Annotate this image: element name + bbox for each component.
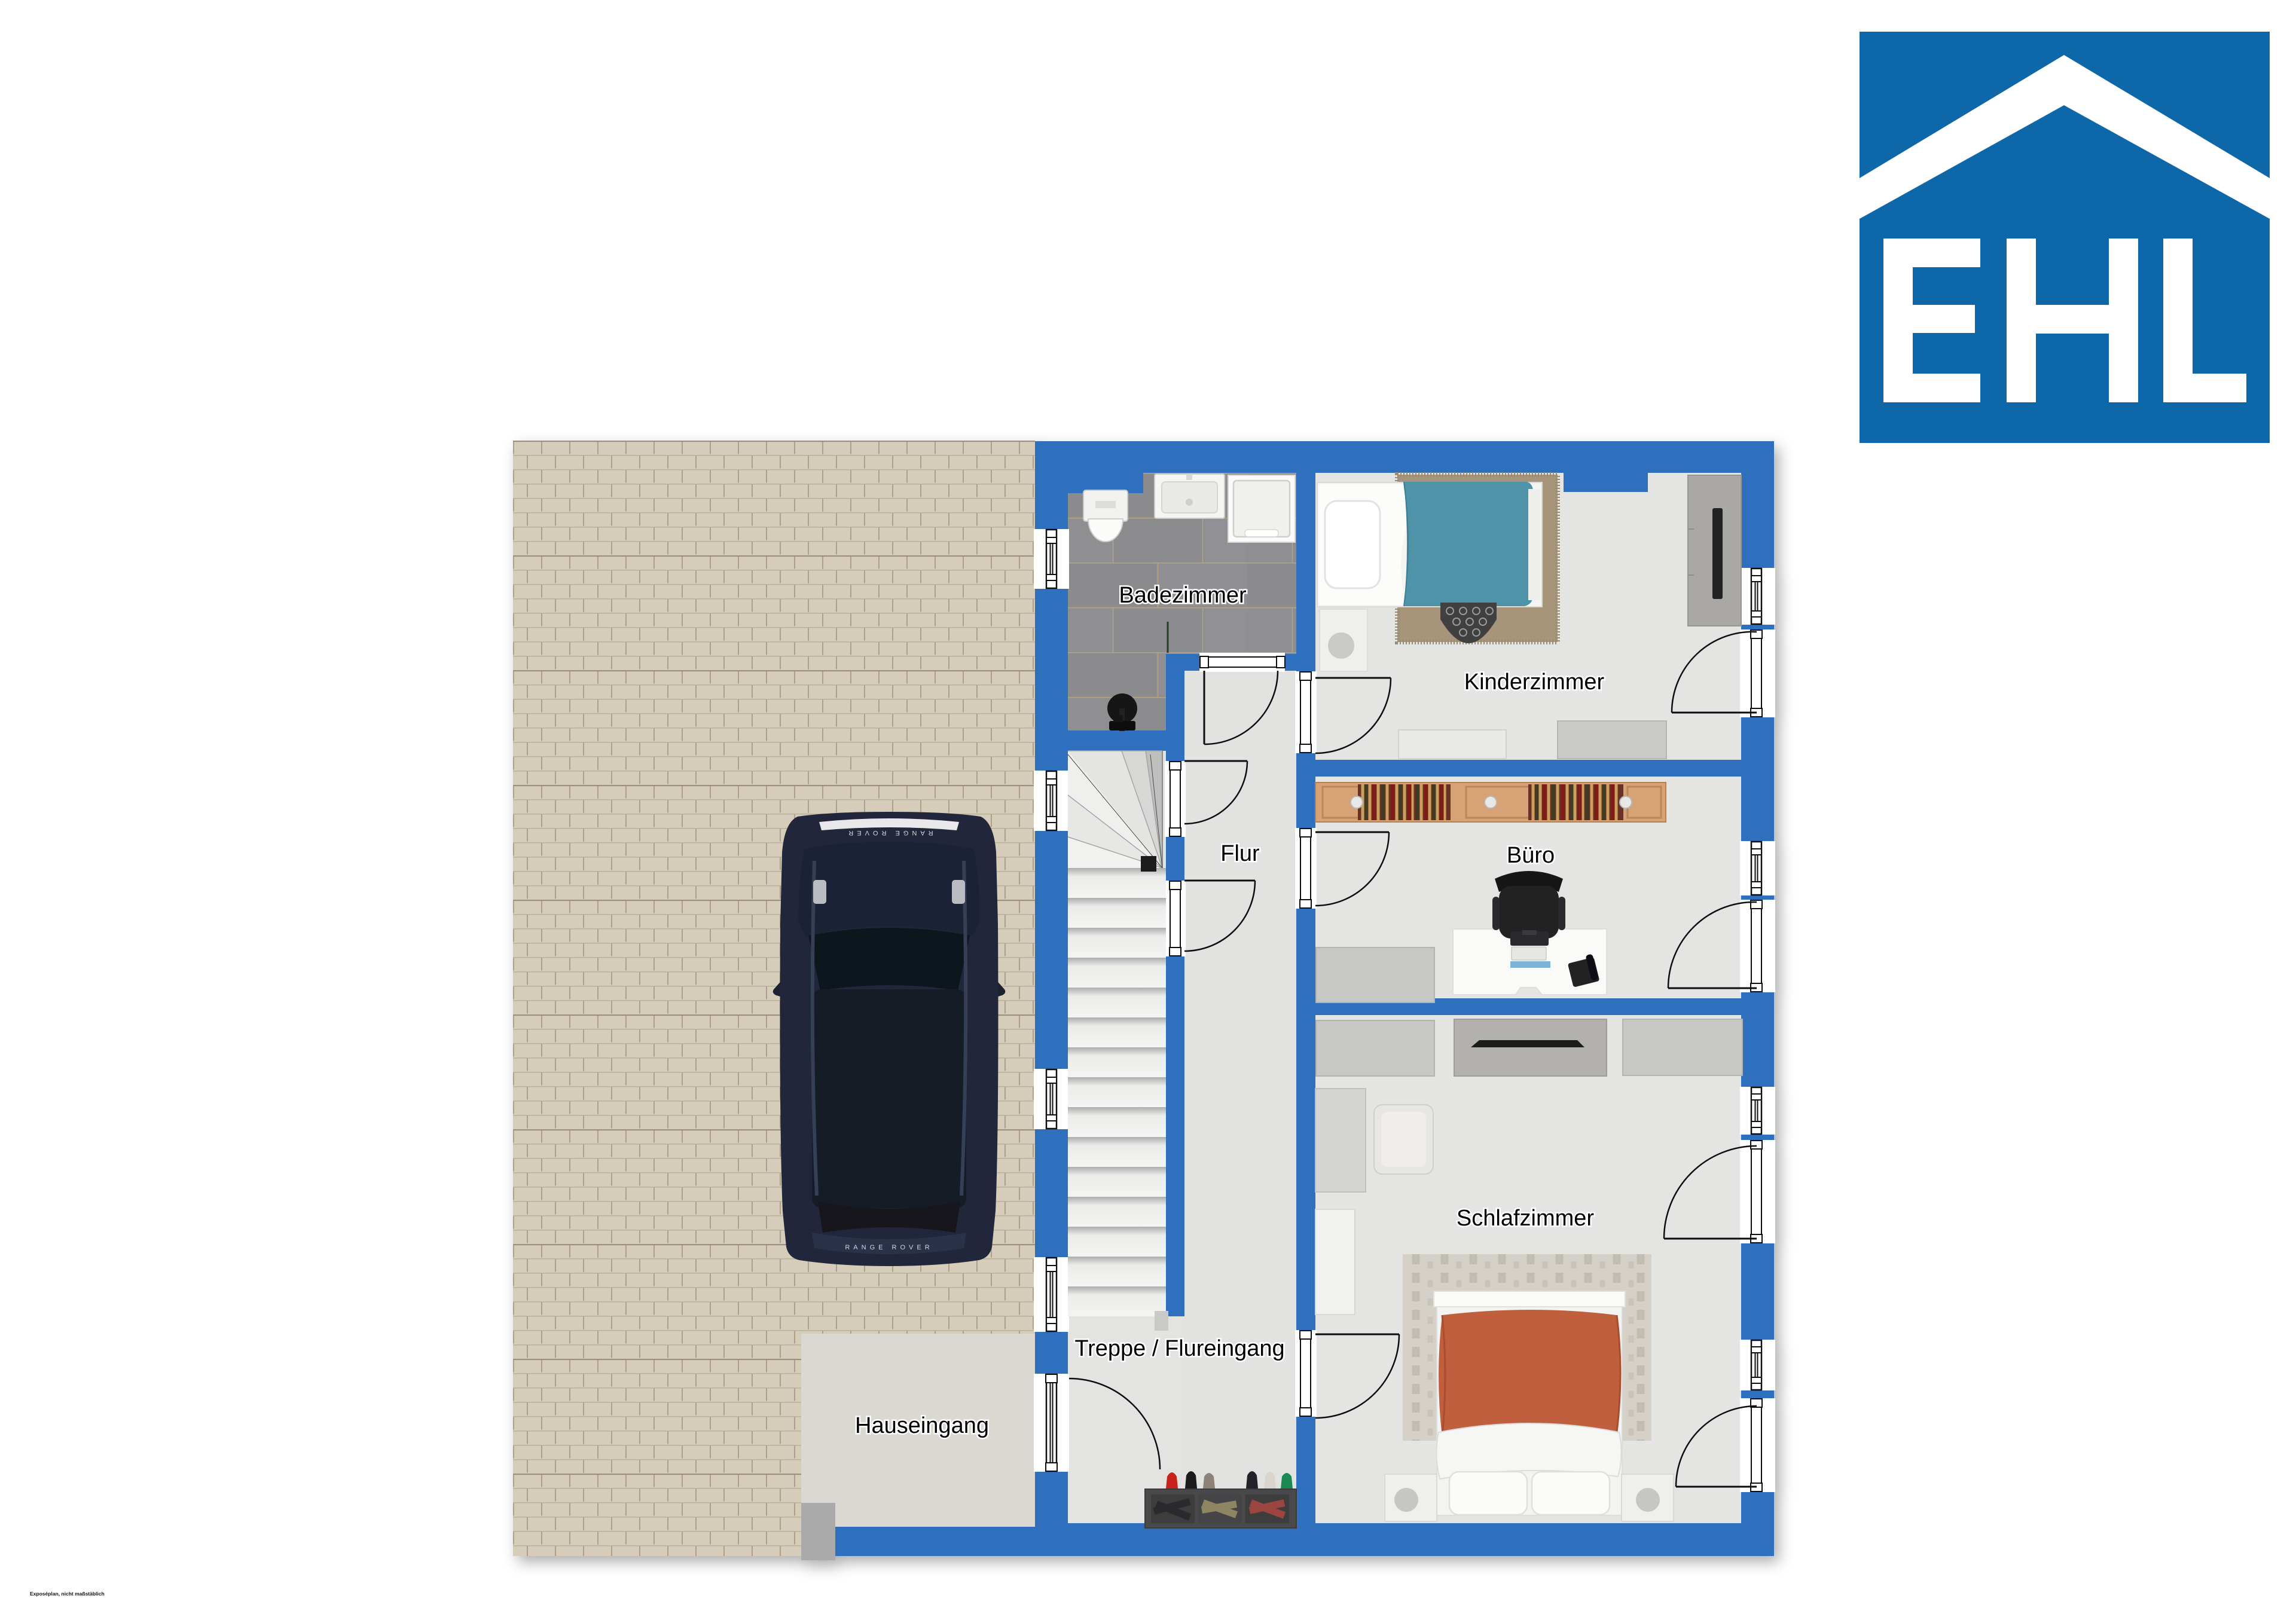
svg-text:Flur: Flur xyxy=(1220,841,1260,866)
svg-text:Badezimmer: Badezimmer xyxy=(1119,583,1247,608)
svg-text:Kinderzimmer: Kinderzimmer xyxy=(1464,670,1605,695)
svg-text:Treppe / Flureingang: Treppe / Flureingang xyxy=(1074,1336,1284,1361)
svg-text:RANGE ROVER: RANGE ROVER xyxy=(845,1244,933,1251)
svg-text:Büro: Büro xyxy=(1507,843,1555,868)
svg-text:Exposéplan, nicht maßstäblich: Exposéplan, nicht maßstäblich xyxy=(30,1591,105,1597)
svg-text:RANGE ROVER: RANGE ROVER xyxy=(845,829,933,836)
svg-text:Hauseingang: Hauseingang xyxy=(855,1413,989,1438)
svg-text:Schlafzimmer: Schlafzimmer xyxy=(1457,1206,1594,1231)
